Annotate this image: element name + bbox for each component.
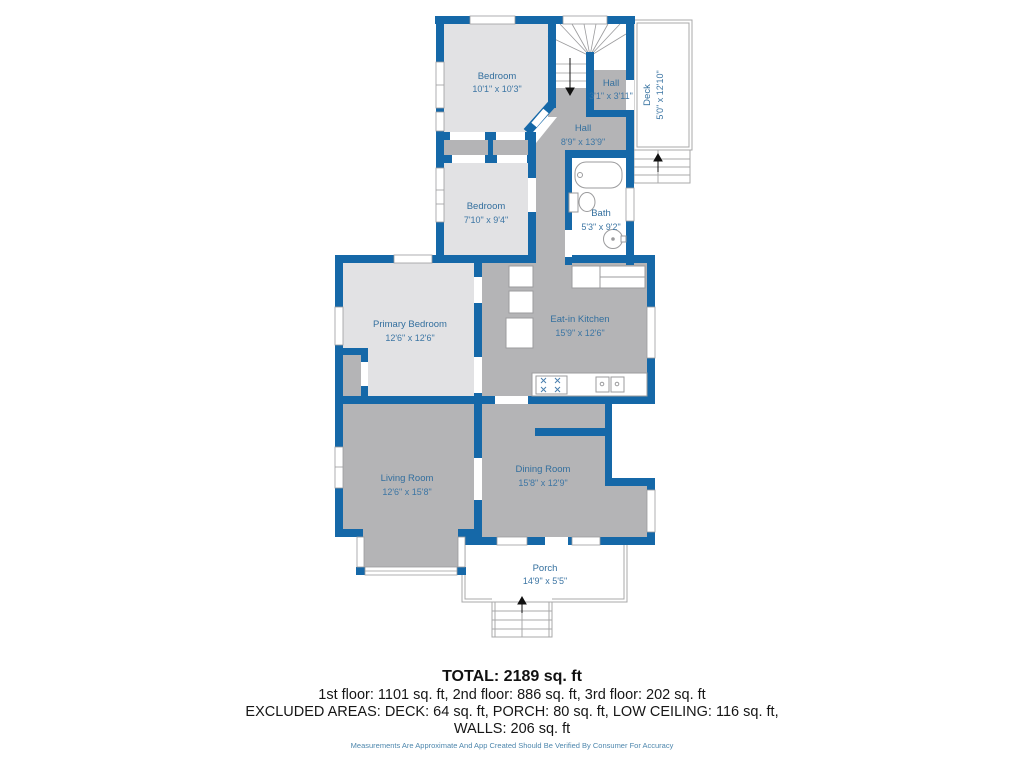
room-fills [343,24,647,567]
summary-walls: WALLS: 206 sq. ft [454,721,570,737]
label-kitchen: Eat-in Kitchen [550,314,609,325]
closet-left [444,140,488,157]
room-hall-small [594,70,626,110]
toilet-tank [569,193,578,212]
kitchen-sink-right [611,377,624,392]
dims-porch: 14'9" x 5'5" [523,576,567,586]
label-bedroom-mid: Bedroom [467,201,506,212]
dims-bath: 5'3" x 9'2" [581,222,620,232]
dims-hall-main: 8'9" x 13'9" [561,137,605,147]
dims-kitchen: 15'9" x 12'6" [555,328,604,338]
closet-primary [343,355,361,396]
dims-hall-small: 3'1" x 3'11" [589,91,633,101]
dims-deck: 5'0" x 12'10" [655,70,665,119]
summary-total: TOTAL: 2189 sq. ft [442,668,583,685]
floorplan-page: Bedroom 10'1" x 10'3" Hall 3'1" x 3'11" … [0,0,1024,768]
summary-excluded: EXCLUDED AREAS: DECK: 64 sq. ft, PORCH: … [245,704,778,720]
tub-faucet [578,173,583,178]
label-primary-bedroom: Primary Bedroom [373,319,447,330]
label-bedroom-upper: Bedroom [478,71,517,82]
label-porch: Porch [533,563,558,574]
closet-right [493,140,528,157]
dims-dining-room: 15'8" x 12'9" [518,478,567,488]
dims-bedroom-upper: 10'1" x 10'3" [472,84,521,94]
floorplan-drawing: Bedroom 10'1" x 10'3" Hall 3'1" x 3'11" … [0,0,1024,768]
label-living-room: Living Room [381,473,434,484]
summary-floors: 1st floor: 1101 sq. ft, 2nd floor: 886 s… [318,687,705,703]
summary-block: TOTAL: 2189 sq. ft 1st floor: 1101 sq. f… [245,668,778,750]
kitchen-sink-left [596,377,609,392]
summary-disclaimer: Measurements Are Approximate And App Cre… [351,741,674,750]
room-dining-bump [612,486,647,537]
label-hall-main: Hall [575,123,591,134]
bath-sink-tap [621,236,626,242]
label-hall-small: Hall [603,78,619,89]
dims-living-room: 12'6" x 15'8" [382,487,431,497]
basement-stairs [509,266,533,287]
label-deck: Deck [642,84,653,106]
dims-primary-bedroom: 12'6" x 12'6" [385,333,434,343]
label-bath: Bath [591,208,611,219]
label-dining-room: Dining Room [516,464,571,475]
dims-bedroom-mid: 7'10" x 9'4" [464,215,508,225]
stove [536,376,567,394]
